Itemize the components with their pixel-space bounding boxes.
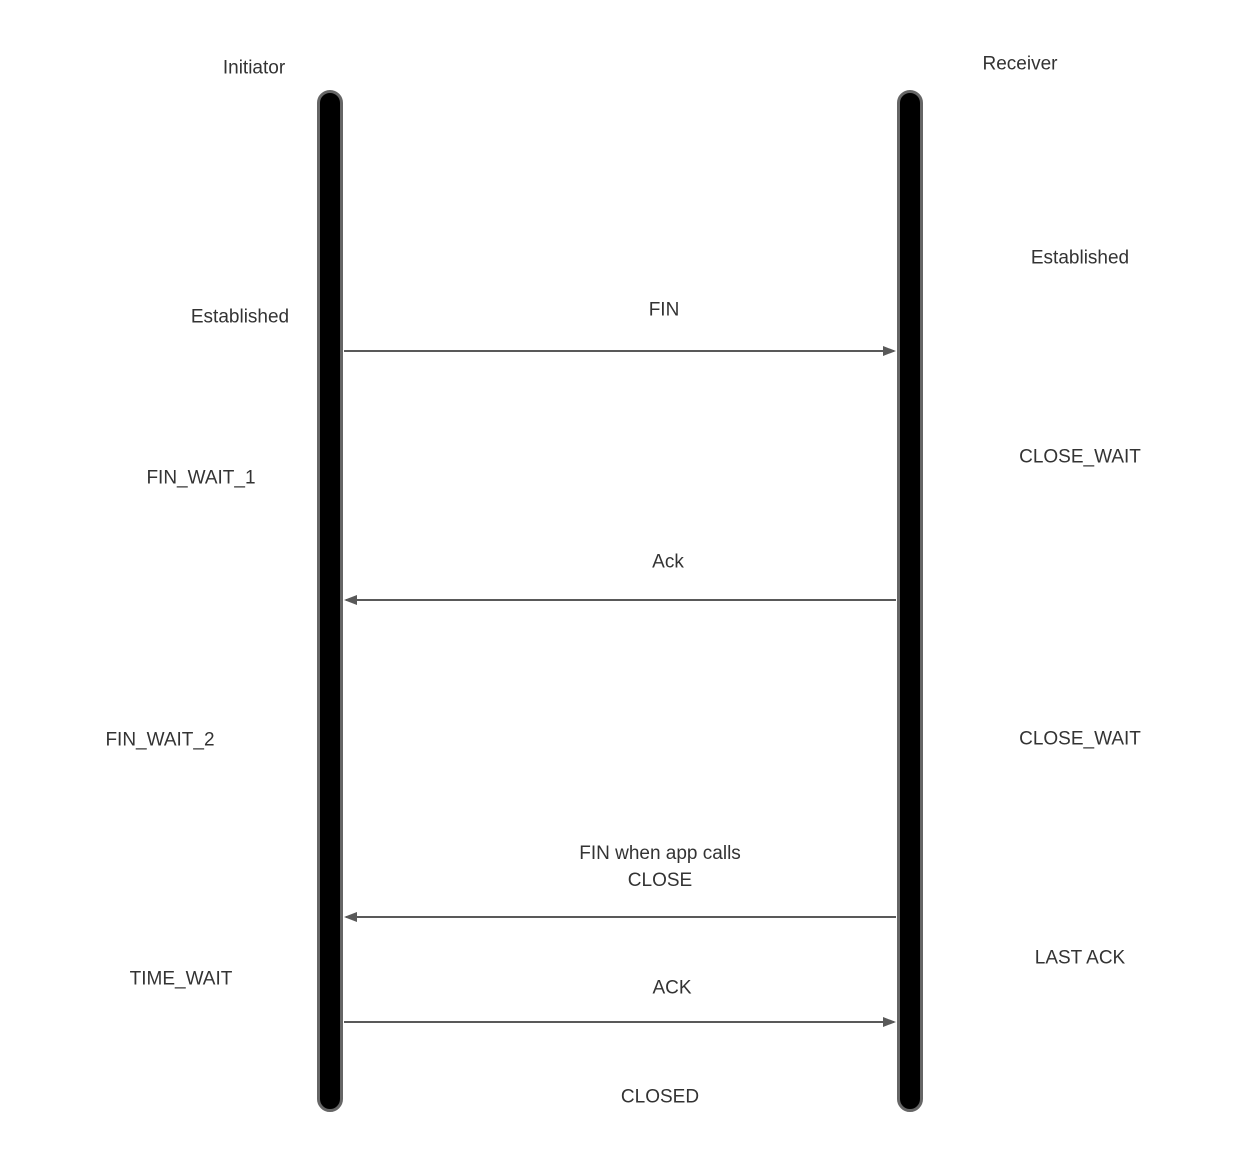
state-label-closed: CLOSED	[621, 1084, 699, 1111]
state-label-initiator-established: Established	[191, 304, 289, 331]
state-label-last-ack: LAST ACK	[1035, 945, 1125, 972]
message-label-ack-final: ACK	[652, 975, 691, 1002]
state-label-fin-wait-1: FIN_WAIT_1	[146, 465, 255, 492]
sequence-diagram: Initiator Receiver FIN Ack FIN when app …	[0, 0, 1240, 1171]
state-label-receiver-established: Established	[1031, 245, 1129, 272]
message-label-fin-when-app-calls-close: FIN when app calls CLOSE	[579, 840, 741, 894]
state-label-close-wait-1: CLOSE_WAIT	[1019, 444, 1141, 471]
message-label-ack: Ack	[652, 549, 684, 576]
message-label-fin: FIN	[649, 297, 680, 324]
state-label-close-wait-2: CLOSE_WAIT	[1019, 726, 1141, 753]
state-label-time-wait: TIME_WAIT	[130, 966, 233, 993]
message-arrows	[0, 0, 1240, 1171]
state-label-fin-wait-2: FIN_WAIT_2	[105, 727, 214, 754]
